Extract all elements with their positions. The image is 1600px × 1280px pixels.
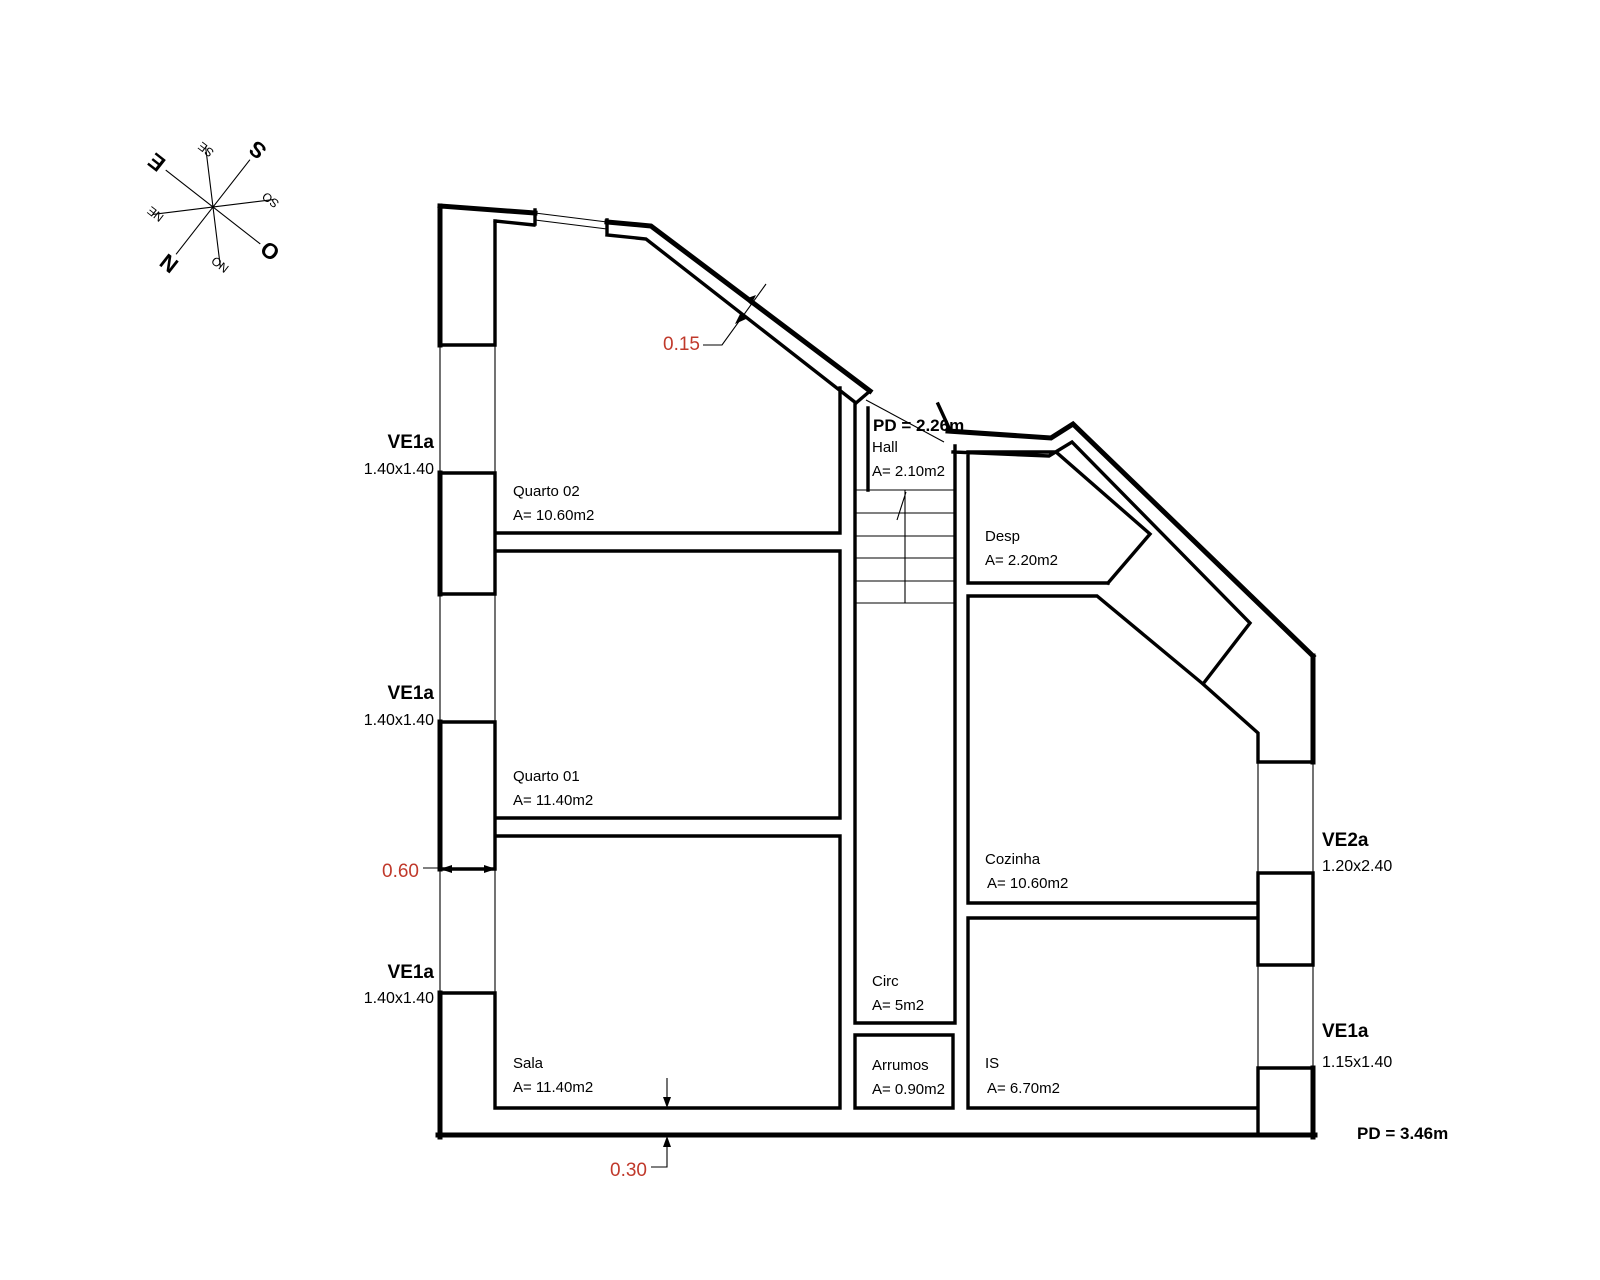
window-size-ve1a-2: 1.40x1.40 bbox=[364, 712, 434, 729]
compass-label-no: NO bbox=[209, 253, 232, 275]
window-size-ve1a-1: 1.40x1.40 bbox=[364, 461, 434, 478]
window-size-ve1a-right: 1.15x1.40 bbox=[1322, 1054, 1392, 1071]
room-area-quarto-02: A= 10.60m2 bbox=[513, 507, 594, 524]
compass-rose: N S E O NE SE SO NO bbox=[99, 91, 329, 323]
compass-label-o: O bbox=[256, 236, 285, 266]
window-label-ve1a-3: VE1a bbox=[388, 962, 435, 983]
window-label-ve1a-1: VE1a bbox=[388, 432, 435, 453]
room-area-arrumos: A= 0.90m2 bbox=[872, 1081, 945, 1098]
room-area-hall: A= 2.10m2 bbox=[872, 463, 945, 480]
room-name-quarto-01: Quarto 01 bbox=[513, 768, 580, 785]
window-label-ve1a-2: VE1a bbox=[388, 683, 435, 704]
room-area-is: A= 6.70m2 bbox=[987, 1080, 1060, 1097]
compass-label-e: E bbox=[143, 148, 170, 177]
dim-arrow-0-30-b bbox=[663, 1136, 671, 1147]
floorplan-canvas: N S E O NE SE SO NO 0.15 0.60 bbox=[0, 0, 1600, 1280]
window-label-ve1a-right: VE1a bbox=[1322, 1021, 1369, 1042]
compass-label-ne: NE bbox=[145, 203, 167, 224]
pd-label-main: PD = 3.46m bbox=[1357, 1124, 1448, 1143]
room-name-hall: Hall bbox=[872, 439, 898, 456]
room-area-cozinha: A= 10.60m2 bbox=[987, 875, 1068, 892]
window-size-ve1a-3: 1.40x1.40 bbox=[364, 990, 434, 1007]
compass-label-se: SE bbox=[195, 139, 216, 160]
room-name-sala: Sala bbox=[513, 1055, 544, 1072]
room-area-circ: A= 5m2 bbox=[872, 997, 924, 1014]
room-name-is: IS bbox=[985, 1055, 999, 1072]
floor-plan-drawing: N S E O NE SE SO NO 0.15 0.60 bbox=[0, 0, 1600, 1280]
room-name-arrumos: Arrumos bbox=[872, 1057, 929, 1074]
dim-leader-0-15 bbox=[703, 284, 766, 345]
pd-label-hall: PD = 2.26m bbox=[873, 416, 964, 435]
room-name-desp: Desp bbox=[985, 528, 1020, 545]
dim-leader-0-30 bbox=[651, 1078, 667, 1167]
room-labels: Quarto 02 A= 10.60m2 Quarto 01 A= 11.40m… bbox=[513, 439, 1068, 1098]
dim-text-0-60: 0.60 bbox=[382, 861, 419, 882]
stairs bbox=[856, 490, 954, 603]
compass-label-n: N bbox=[155, 249, 183, 278]
room-name-quarto-02: Quarto 02 bbox=[513, 483, 580, 500]
room-area-quarto-01: A= 11.40m2 bbox=[513, 792, 593, 809]
window-openings bbox=[440, 213, 1313, 1068]
compass-label-s: S bbox=[244, 135, 271, 164]
dim-text-0-15: 0.15 bbox=[663, 334, 700, 355]
window-size-ve2a: 1.20x2.40 bbox=[1322, 858, 1392, 875]
stair-treads bbox=[856, 490, 954, 603]
room-name-circ: Circ bbox=[872, 973, 899, 990]
dim-text-0-30: 0.30 bbox=[610, 1160, 647, 1181]
window-label-ve2a: VE2a bbox=[1322, 830, 1369, 851]
room-area-sala: A= 11.40m2 bbox=[513, 1079, 593, 1096]
room-name-cozinha: Cozinha bbox=[985, 851, 1041, 868]
room-area-desp: A= 2.20m2 bbox=[985, 552, 1058, 569]
compass-label-so: SO bbox=[259, 189, 281, 211]
